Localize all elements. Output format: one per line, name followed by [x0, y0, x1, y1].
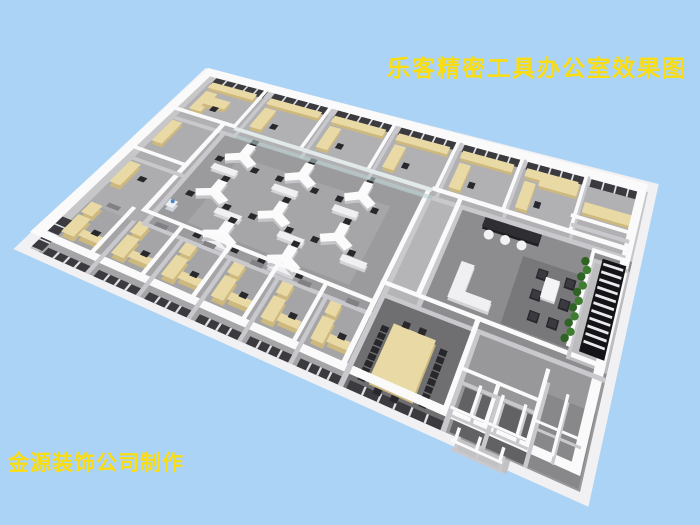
plant-wall	[579, 281, 587, 289]
plant-wall	[573, 288, 581, 296]
plant-wall	[577, 272, 585, 280]
plant-wall	[560, 334, 568, 342]
credit-text: 金源装饰公司制作	[8, 447, 184, 477]
render-page: 乐客精密工具办公室效果图 金源装饰公司制作	[0, 0, 700, 525]
plant-wall	[570, 312, 578, 320]
plant-wall	[583, 266, 591, 274]
plant-wall	[575, 297, 583, 305]
bar-stool	[484, 230, 494, 240]
page-title: 乐客精密工具办公室效果图	[387, 49, 687, 83]
bar-stool	[517, 240, 527, 250]
plant-wall	[565, 319, 573, 327]
bar-stool	[500, 235, 510, 245]
water-bottle	[171, 199, 175, 203]
plant-wall	[566, 328, 574, 336]
plant-wall	[569, 303, 577, 311]
plant-wall	[581, 257, 589, 265]
